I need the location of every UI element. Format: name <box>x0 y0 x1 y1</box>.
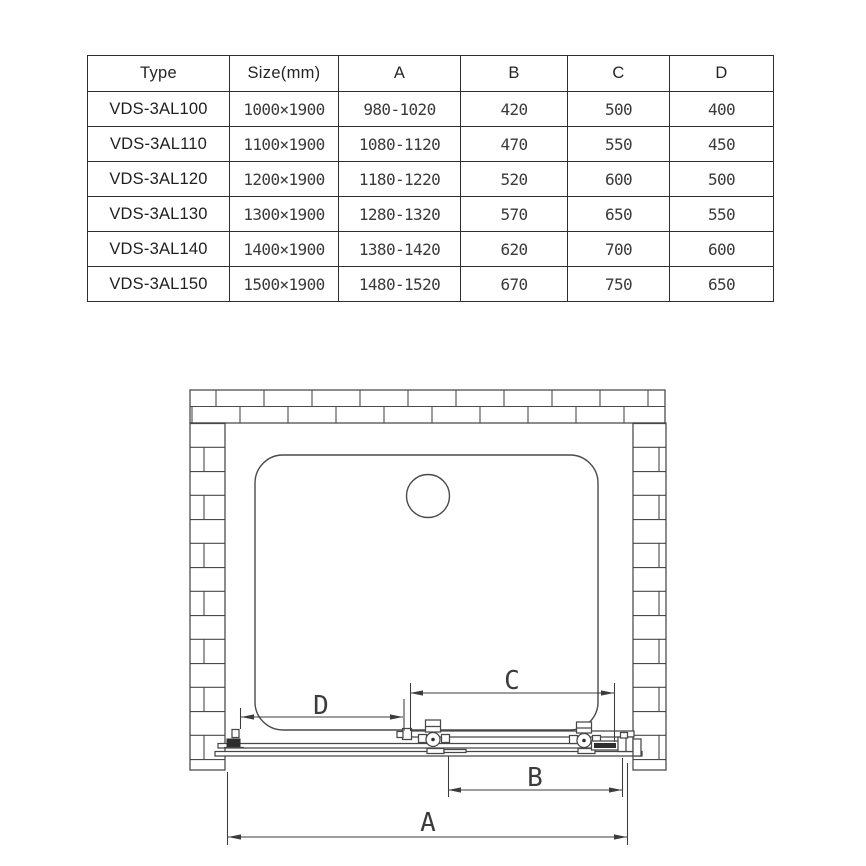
dimension-d: D <box>241 691 405 731</box>
brick-wall-right <box>633 423 666 770</box>
dimension-c-label: C <box>504 666 520 696</box>
dimension-d-label: D <box>313 691 329 721</box>
brick-wall <box>190 390 666 770</box>
shower-glass-panel <box>255 455 598 730</box>
handle-circle <box>407 475 450 518</box>
brick-wall-top <box>190 390 665 423</box>
installation-diagram: D C B A <box>0 0 866 866</box>
dimension-b: B <box>448 756 623 797</box>
dimension-a: A <box>228 763 628 845</box>
dimension-b-label: B <box>527 763 543 793</box>
dimension-a-label: A <box>420 808 436 838</box>
door-guide-nub <box>397 732 403 738</box>
track-rail-upper <box>218 744 634 749</box>
brick-wall-left <box>190 423 225 770</box>
